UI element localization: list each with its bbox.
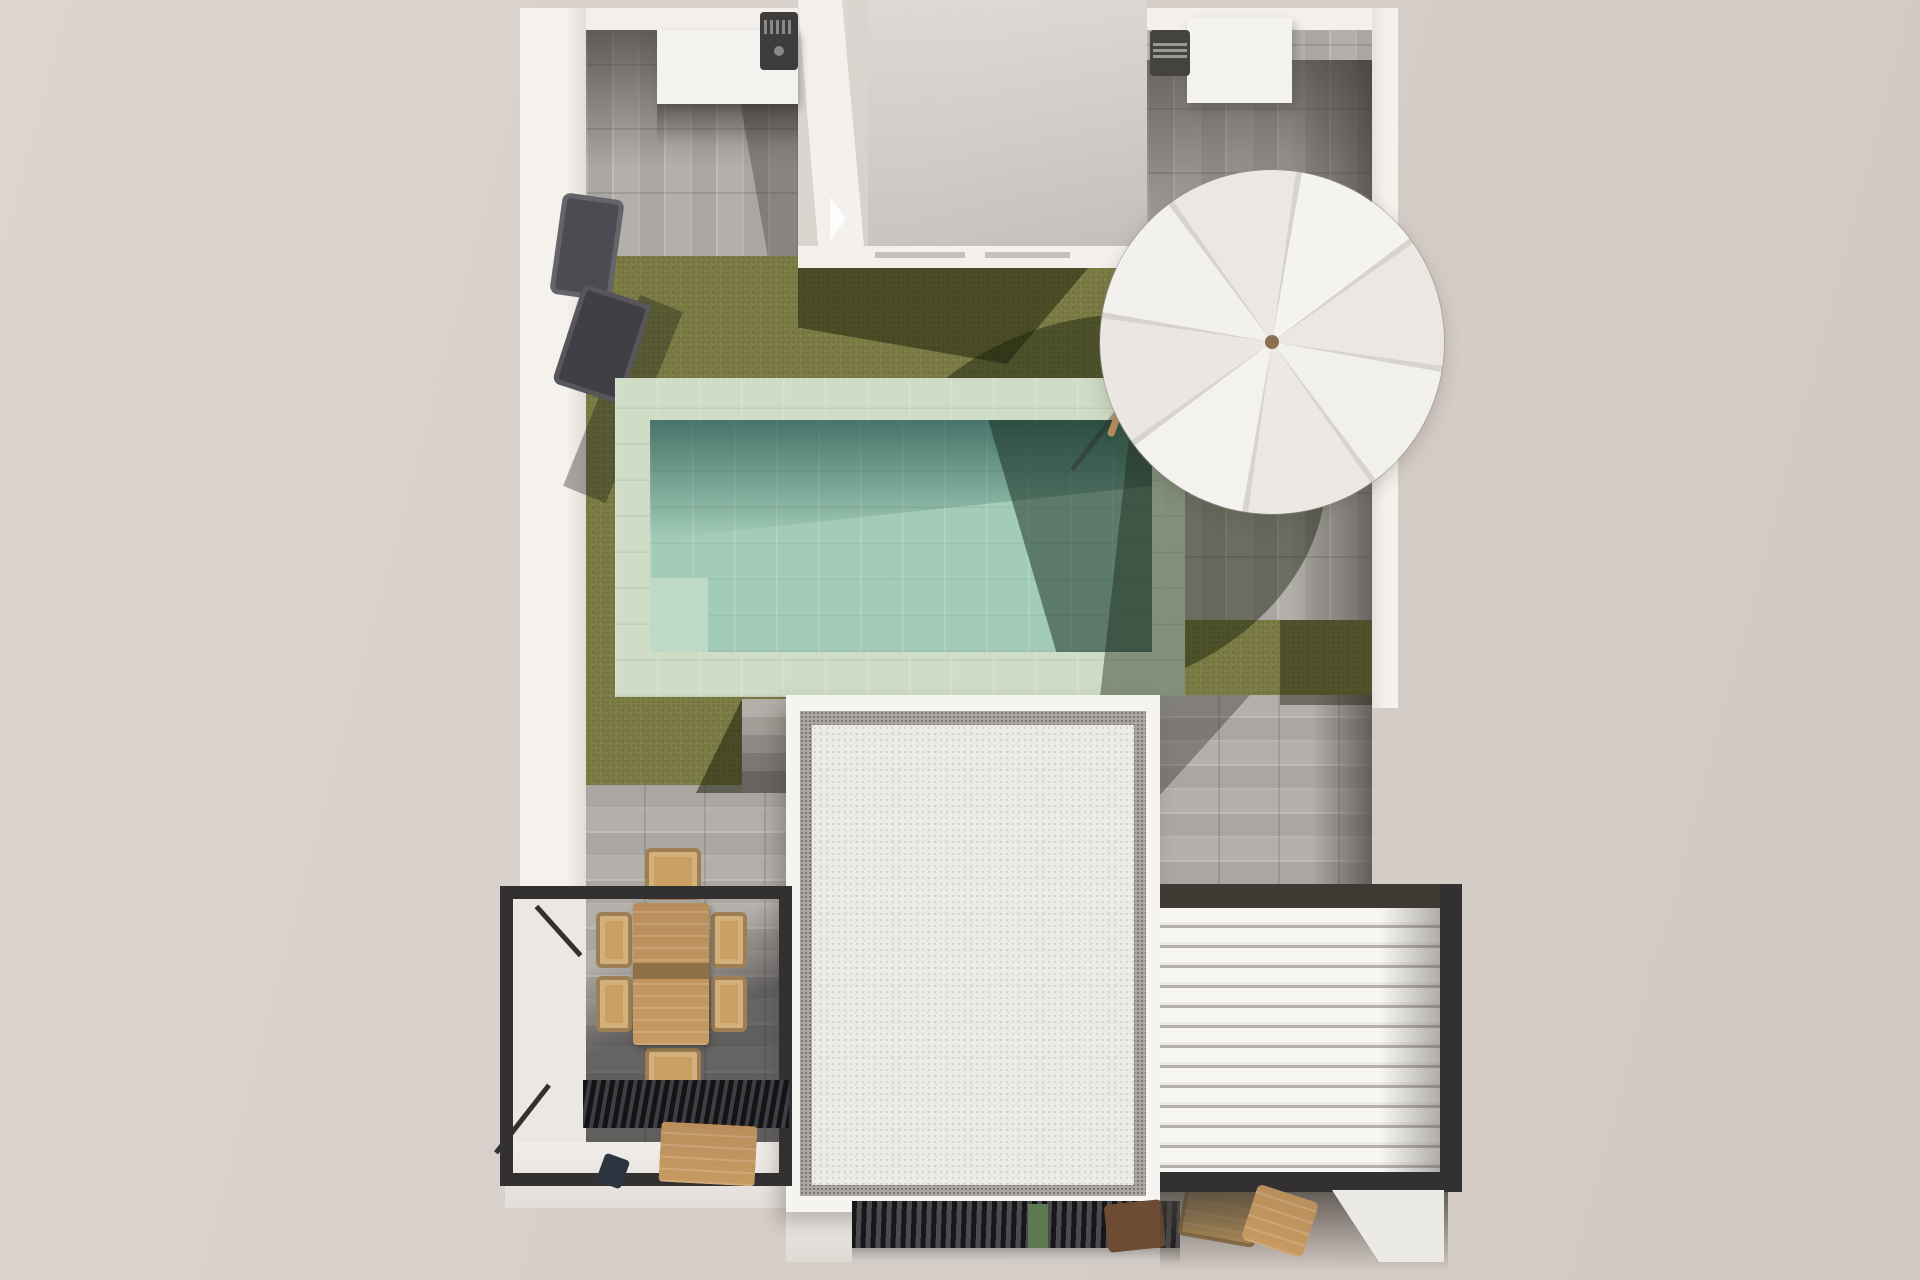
bottom-grate-plant — [1028, 1204, 1048, 1248]
building-roof — [786, 695, 1160, 1212]
house-roof-groove-left — [875, 252, 965, 258]
wall-left — [520, 8, 586, 892]
house-roof-highlight — [868, 0, 1147, 246]
grill-left-grate — [764, 20, 794, 34]
wall-shadow-on-lawn-right — [1280, 620, 1372, 705]
step-3 — [742, 735, 786, 755]
parasol-hub — [1265, 335, 1279, 349]
step-5 — [742, 771, 786, 793]
lower-right-paving-wall-shadow — [1312, 695, 1372, 886]
dark-wood-piece-bottom — [1104, 1199, 1167, 1253]
right-pergola-louver-edge-shade — [1380, 908, 1440, 1172]
kitchen-box-left-shadow — [657, 104, 798, 146]
building-roof-gravel — [812, 725, 1134, 1185]
house-south-parapet — [798, 246, 1147, 268]
barbecue-grill-right-icon — [1150, 30, 1190, 76]
house-roof-block — [798, 0, 1147, 268]
aerial-render — [0, 0, 1920, 1280]
grill-left-knob — [774, 46, 784, 56]
kitchen-box-right — [1187, 18, 1292, 103]
step-4 — [742, 753, 786, 773]
house-roof-groove-right — [985, 252, 1070, 258]
pool-underwater-bench — [650, 578, 708, 652]
barbecue-grill-left-icon — [760, 12, 798, 70]
right-pergola-right-bar — [1440, 884, 1462, 1190]
grill-right-grate — [1153, 42, 1187, 58]
pergola-louver-grate — [583, 1080, 789, 1128]
pool-steps — [742, 699, 786, 793]
wooden-bench-under-pergola — [658, 1122, 757, 1187]
step-2 — [742, 717, 786, 737]
right-pergola-top-bar — [1160, 884, 1462, 908]
step-1 — [742, 699, 786, 719]
right-pergola-bottom-bar — [1160, 1172, 1462, 1192]
